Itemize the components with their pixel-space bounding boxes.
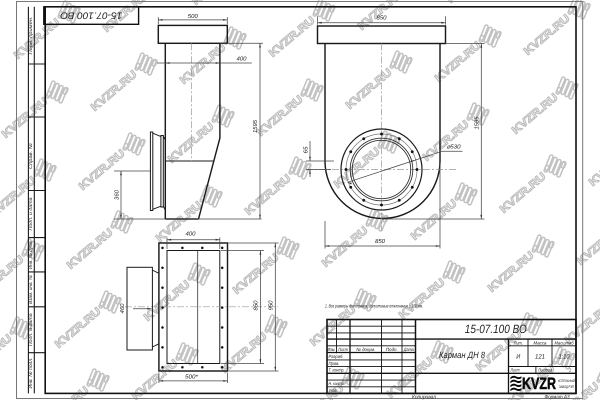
svg-text:И: И (516, 354, 521, 361)
svg-text:15-07.100 ВО: 15-07.100 ВО (465, 322, 527, 336)
svg-text:1. Все размеры для справок, д: 1. Все размеры для справок, допустимые о… (325, 303, 423, 309)
svg-text:Утв.: Утв. (329, 388, 338, 393)
svg-text:Дата: Дата (403, 347, 414, 352)
svg-text:Листов: Листов (537, 367, 552, 372)
svg-text:ЗАВОД РЭП: ЗАВОД РЭП (559, 385, 574, 389)
svg-text:850: 850 (253, 300, 260, 311)
svg-text:15-07.100 ВО: 15-07.100 ВО (60, 10, 123, 21)
svg-text:Н. контр.: Н. контр. (329, 381, 345, 386)
svg-text:Масса: Масса (534, 341, 547, 346)
svg-text:950: 950 (268, 300, 275, 311)
svg-text:Лист: Лист (510, 367, 520, 372)
svg-text:360: 360 (114, 189, 121, 200)
svg-text:Взам. инв. №: Взам. инв. № (28, 274, 34, 304)
svg-text:400: 400 (237, 56, 248, 63)
svg-text:1:10: 1:10 (559, 354, 571, 361)
svg-text:850: 850 (377, 14, 388, 21)
svg-text:Подп. и дата: Подп. и дата (28, 313, 34, 346)
svg-text:Изм.: Изм. (328, 347, 336, 352)
svg-text:Пров.: Пров. (329, 361, 340, 366)
svg-text:Перв. примен.: Перв. примен. (28, 17, 34, 55)
svg-text:⌀530: ⌀530 (447, 144, 462, 151)
svg-text:Подп.: Подп. (386, 347, 398, 352)
svg-text:65: 65 (303, 146, 310, 154)
svg-text:Карман ДН 8: Карман ДН 8 (439, 350, 485, 360)
svg-text:Подп. и дата: Подп. и дата (28, 197, 34, 230)
svg-text:Т. контр.: Т. контр. (329, 368, 345, 373)
svg-text:Лит.: Лит. (513, 341, 523, 346)
svg-text:Формат А3: Формат А3 (545, 394, 570, 400)
svg-text:Инв. № подл.: Инв. № подл. (28, 358, 34, 389)
svg-text:Справ. №: Справ. № (28, 142, 34, 169)
svg-text:Копировал: Копировал (412, 394, 436, 400)
svg-text:№ докум.: № докум. (356, 347, 375, 352)
svg-text:500*: 500* (185, 374, 199, 381)
svg-text:Разраб.: Разраб. (329, 354, 344, 359)
svg-text:400: 400 (186, 230, 197, 237)
svg-text:КОТЕЛЬНЫЙ: КОТЕЛЬНЫЙ (558, 378, 575, 383)
svg-text:Масштаб: Масштаб (555, 341, 574, 346)
svg-text:121: 121 (535, 354, 545, 361)
svg-text:1595: 1595 (474, 116, 481, 130)
svg-text:KVZR: KVZR (522, 375, 556, 393)
svg-text:1595: 1595 (252, 119, 259, 133)
svg-text:1: 1 (569, 367, 571, 372)
svg-text:500: 500 (188, 13, 199, 20)
svg-text:Инв. № дубл.: Инв. № дубл. (28, 240, 34, 269)
svg-text:Лист: Лист (337, 347, 348, 352)
svg-text:460: 460 (119, 303, 126, 314)
svg-text:850: 850 (375, 238, 386, 245)
